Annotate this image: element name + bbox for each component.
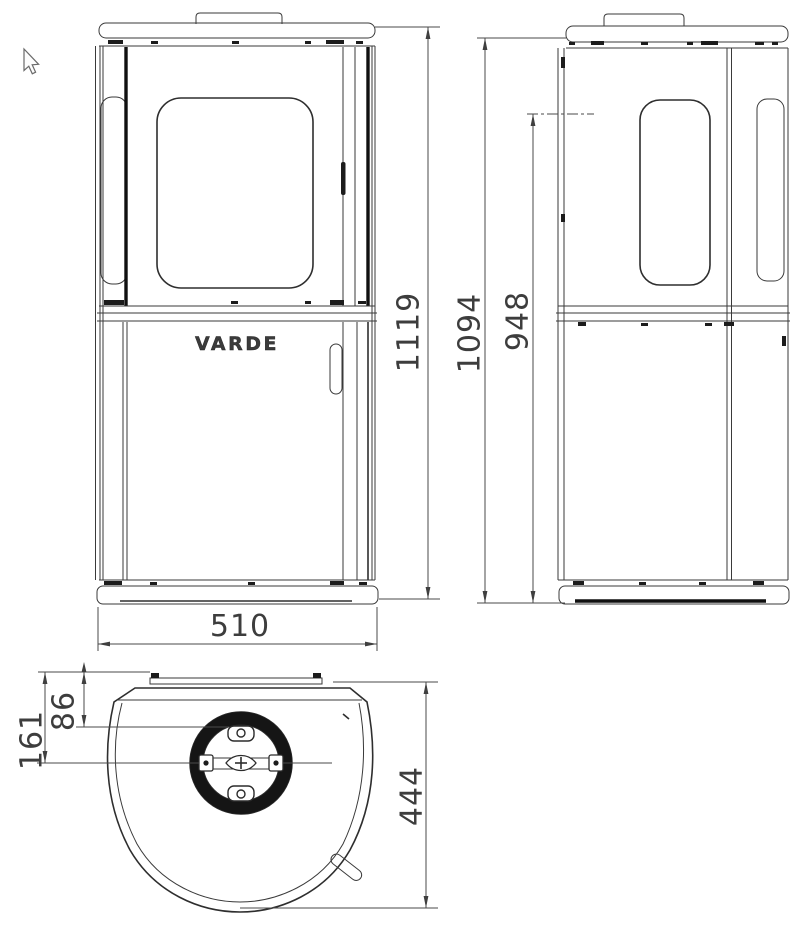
dim-front-height: 1119: [392, 292, 427, 372]
door-latch: [341, 162, 346, 195]
front-height-dimension: 1119: [375, 27, 440, 599]
mouse-cursor: [24, 49, 39, 74]
top-view: [108, 673, 373, 912]
belt-clips-side: [578, 322, 734, 326]
front-door-window: [157, 98, 313, 288]
side-view: [556, 14, 790, 604]
flue-edge-dimension: 86: [38, 662, 229, 731]
dim-side-overall-height: 1094: [453, 293, 488, 373]
top-plate-front: [99, 23, 375, 38]
dim-flue-edge: 86: [47, 691, 82, 731]
dim-flue-center: 161: [15, 710, 50, 770]
dim-front-width: 510: [210, 609, 270, 644]
front-view: VARDE: [96, 13, 379, 604]
base-clips-side: [573, 581, 764, 585]
front-width-dimension: 510: [98, 607, 377, 651]
top-clips-front: [108, 40, 363, 44]
brand-logo: VARDE: [195, 333, 279, 355]
side-window: [640, 100, 710, 285]
flue-collar-side: [604, 14, 684, 26]
dim-side-rear-height: 948: [501, 291, 536, 351]
rear-panel-contour: [757, 99, 784, 281]
base-clips-front: [104, 581, 367, 585]
dim-depth: 444: [395, 766, 430, 826]
technical-drawing-canvas: VARDE 1119 510: [0, 0, 807, 928]
flue-collar-front: [196, 13, 282, 24]
top-plate-side: [566, 26, 788, 42]
belt-clips-front: [104, 300, 366, 305]
top-lip: [150, 678, 322, 684]
door-handle-cup: [330, 344, 342, 394]
side-rear-height-dimension: 948: [501, 114, 595, 603]
left-side-window-edge: [101, 97, 127, 284]
